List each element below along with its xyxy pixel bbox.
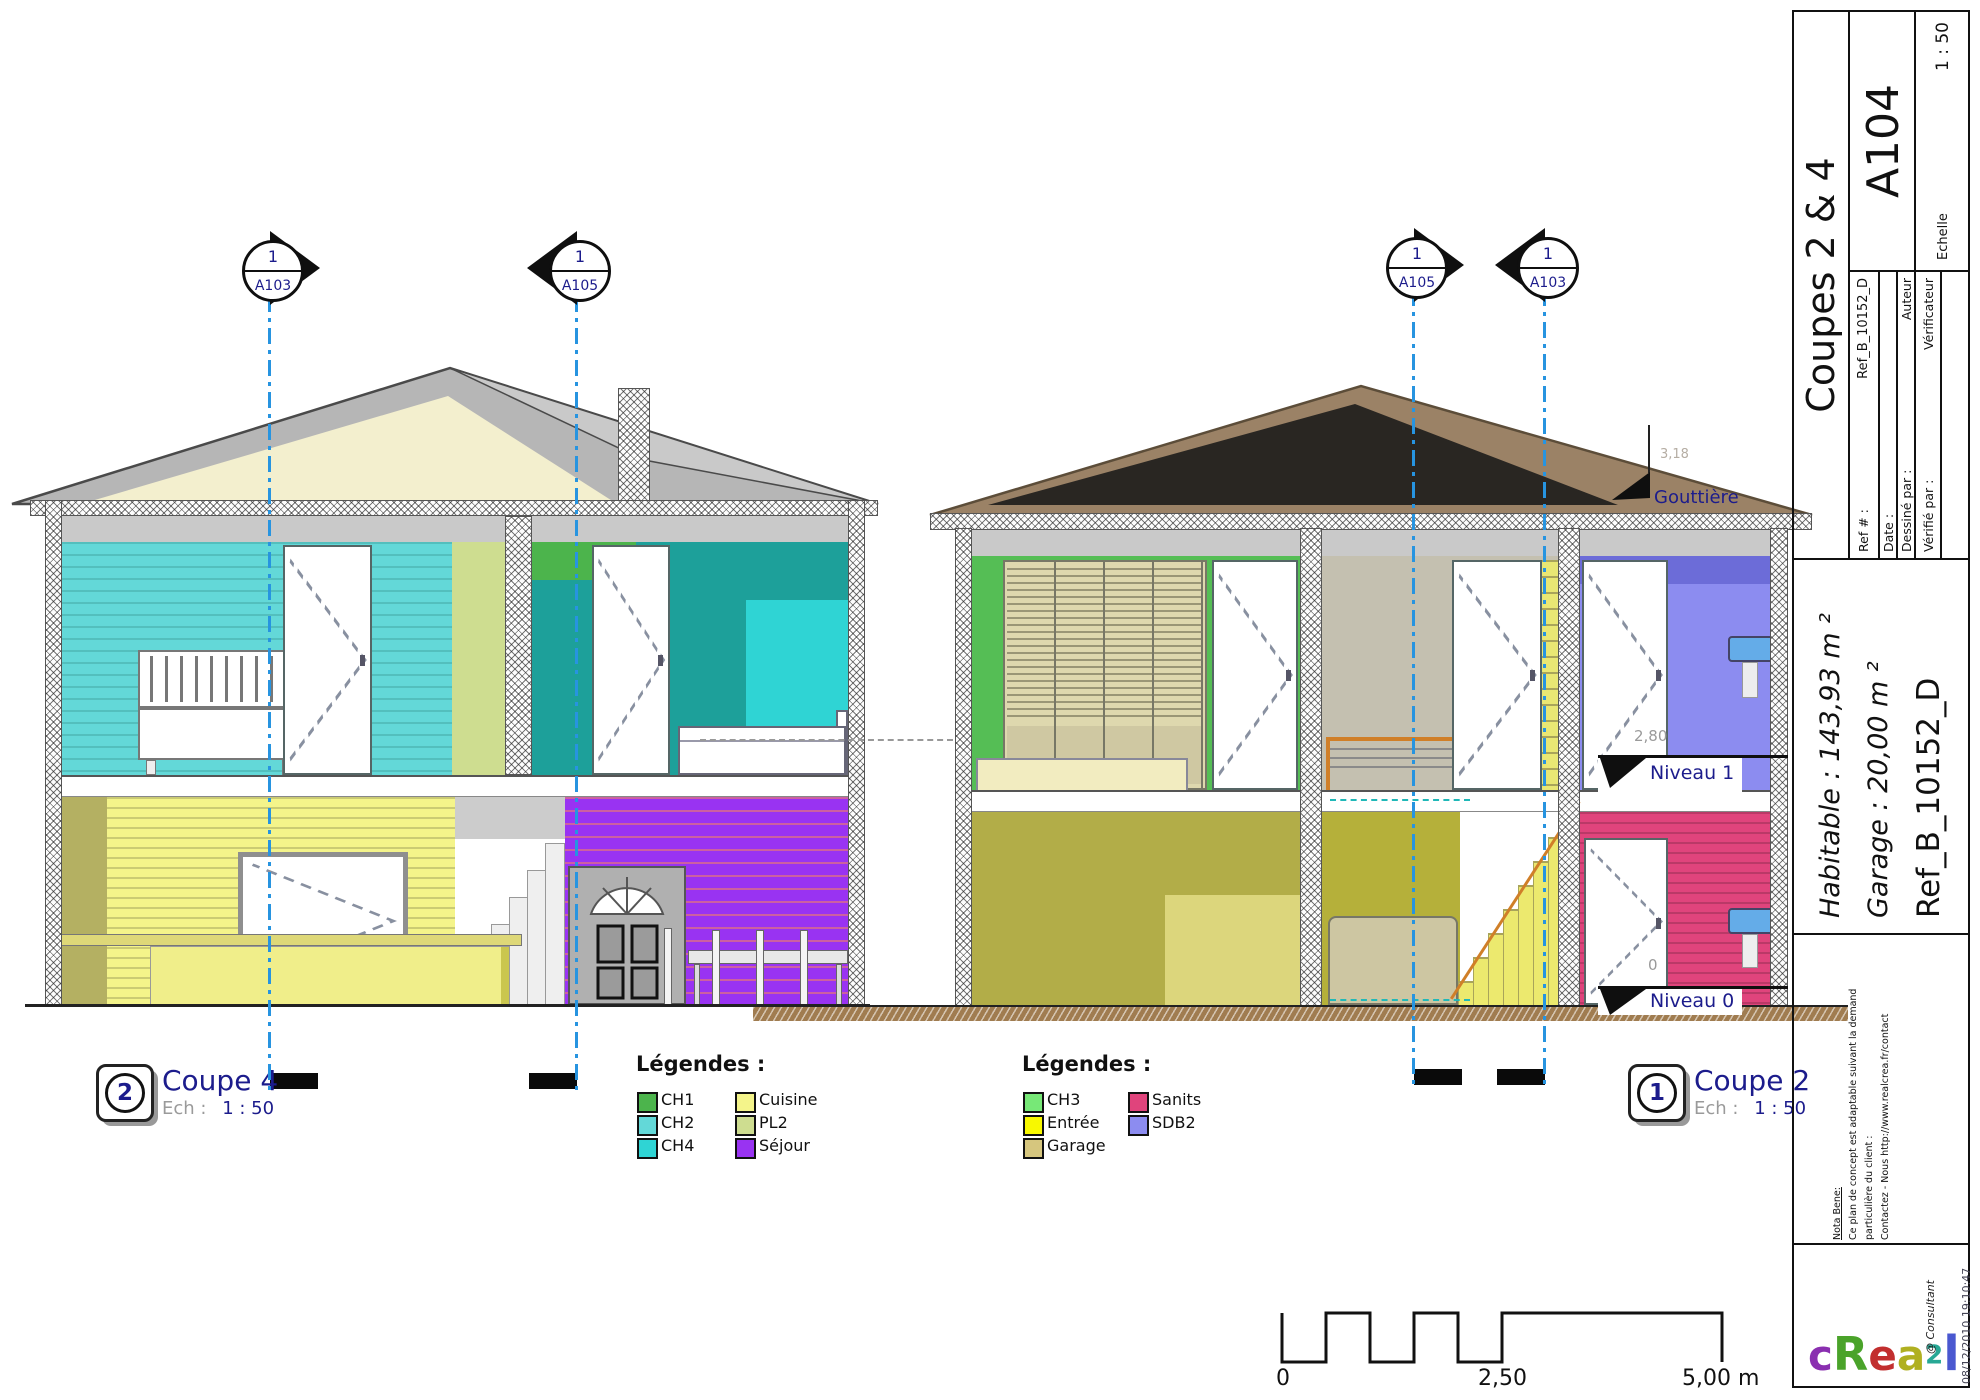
coupe4-icon: 2 [96, 1064, 154, 1122]
legend-label: Cuisine [759, 1090, 818, 1109]
coupe2-scale: Ech : 1 : 50 [1694, 1098, 1806, 1119]
section-marker-sheet: A103 [245, 272, 301, 299]
scale-label-start: 0 [1276, 1366, 1290, 1391]
kitchen-counter-top [52, 934, 522, 946]
section-marker-number: 1 [552, 243, 608, 272]
legend-label: Garage [1047, 1136, 1106, 1155]
tb-border [1792, 1386, 1970, 1388]
gouttiere-label: Gouttière [1654, 487, 1739, 508]
tb-nota-line: particulière du client : [1862, 988, 1878, 1240]
left-wall [955, 528, 972, 1006]
level-ref-dashed-teal [1330, 999, 1470, 1001]
legend-swatch [1128, 1115, 1149, 1136]
ground-line [25, 1004, 870, 1007]
legend-swatch [637, 1138, 658, 1159]
stair-step [1518, 885, 1534, 1007]
radiator-panel [138, 708, 300, 760]
tb-nota-line: Ce plan de concept est adaptable suivant… [1846, 988, 1862, 1240]
chair [756, 930, 764, 1005]
section-line [1543, 290, 1546, 1085]
gouttiere-arrow [1610, 470, 1650, 502]
coupe4-scale: Ech : 1 : 50 [162, 1098, 274, 1119]
tb-areas: Habitable : 143,93 m ² Garage : 20,00 m … [1794, 562, 1968, 932]
tb-divider [1848, 270, 1970, 272]
door [283, 545, 372, 775]
tb-field-label: Dessiné par : [1899, 470, 1914, 552]
coupe4-scale-label: Ech : [162, 1098, 206, 1119]
guard-line [1330, 757, 1466, 759]
coupe2-scale-value: 1 : 50 [1754, 1098, 1806, 1119]
cut-bar [529, 1073, 577, 1089]
door [1452, 560, 1542, 790]
legend-label: Sanits [1152, 1090, 1201, 1109]
level-ref-dashed-teal [1330, 799, 1470, 801]
guard-line [1330, 748, 1466, 750]
left-upper-ceiling-band [62, 516, 848, 542]
left-floor-slab [45, 775, 865, 797]
door [1212, 560, 1298, 790]
tb-sheet-number: A104 [1852, 14, 1914, 268]
coupe2-icon-circle: 1 [1637, 1073, 1677, 1113]
stair-step [1473, 957, 1489, 1007]
coupe4-scale-value: 1 : 50 [222, 1098, 274, 1119]
tb-divider [1792, 558, 1970, 560]
tb-nota-heading: Nota Bene: [1830, 988, 1846, 1240]
scale-label-mid: 2,50 [1478, 1366, 1527, 1391]
plot-timestamp-text: 08/12/2010 19:10:47 [1960, 1268, 1973, 1384]
left-eave-band [30, 500, 878, 516]
center-wall [1300, 528, 1322, 1006]
niveau0-dim: 0 [1648, 956, 1658, 974]
section-marker: 1 A103 [1517, 237, 1579, 299]
center-wall [1558, 528, 1580, 1006]
legend-label: SDB2 [1152, 1113, 1196, 1132]
chair [712, 930, 720, 1005]
tb-field-value: Auteur [1899, 278, 1914, 320]
shutter-separators [1007, 562, 1203, 788]
guard-line [1330, 766, 1466, 768]
legend-label: CH1 [661, 1090, 694, 1109]
tb-divider [1792, 933, 1970, 935]
legend-swatch [1023, 1092, 1044, 1113]
section-marker: 1 A103 [242, 240, 304, 302]
legend-swatch [735, 1115, 756, 1136]
legend-label: CH2 [661, 1113, 694, 1132]
coupe4-icon-circle: 2 [105, 1073, 145, 1113]
legend-swatch [637, 1115, 658, 1136]
chair [800, 930, 808, 1005]
section-marker-sheet: A105 [1389, 269, 1445, 296]
tb-sheet-number-text: A104 [1858, 84, 1909, 198]
section-line [268, 296, 271, 1090]
legend-label: Séjour [759, 1136, 810, 1155]
bed [976, 758, 1188, 792]
tb-scale-cell: Echelle 1 : 50 [1918, 14, 1968, 268]
tb-area-garage: Garage : 20,00 m ² [1855, 562, 1903, 918]
legend-swatch [1023, 1138, 1044, 1159]
radiator-leg [146, 760, 156, 775]
cuisine-olive-strip [62, 797, 107, 1005]
door [592, 545, 670, 775]
table-leg [694, 964, 700, 1005]
stair-step [545, 843, 565, 1007]
cut-bar [1414, 1069, 1462, 1085]
table-leg [836, 964, 842, 1005]
tb-field-label: Date : [1881, 514, 1896, 552]
niveau1-dim: 2,80 [1634, 727, 1667, 745]
door [1584, 838, 1668, 1005]
stair-step [1503, 909, 1519, 1007]
niveau0-arrow [1600, 989, 1646, 1015]
section-line [575, 296, 578, 1090]
legend-title: Légendes : [636, 1052, 765, 1076]
section-marker: 1 A105 [549, 240, 611, 302]
tb-field-dessine: Dessiné par : Auteur [1898, 274, 1914, 556]
logo-letter: a [1897, 1331, 1925, 1380]
legend-swatch [735, 1138, 756, 1159]
tb-consultant: @ Consultant [1924, 1276, 1942, 1354]
tb-area-habitable: Habitable : 143,93 m ² [1807, 562, 1855, 918]
sink-pedestal [1742, 934, 1758, 968]
niveau0-label: Niveau 0 [1650, 990, 1734, 1012]
niveau1-label: Niveau 1 [1650, 762, 1734, 784]
tb-reference: Ref_B_10152_D [1903, 562, 1955, 918]
tb-sheet-title: Coupes 2 & 4 [1794, 14, 1848, 556]
tb-border [1792, 10, 1970, 12]
room-pl2 [452, 542, 505, 775]
logo-letter: e [1868, 1331, 1897, 1380]
tb-sheet-title-text: Coupes 2 & 4 [1799, 157, 1843, 412]
coupe2-icon: 1 [1628, 1064, 1686, 1122]
sink-basin [1728, 636, 1774, 662]
logo-letter: R [1833, 1327, 1868, 1381]
gouttiere-leader [1648, 425, 1650, 473]
level-ref-dashed [700, 739, 953, 741]
kitchen-cabinet [150, 946, 510, 1005]
chair [664, 928, 672, 1005]
legend-swatch [1128, 1092, 1149, 1113]
right-wall [1770, 528, 1788, 1006]
legend-label: CH4 [661, 1136, 694, 1155]
bed [678, 726, 846, 775]
tb-field-value: Ref_B_10152_D [1856, 278, 1871, 379]
left-roof [0, 352, 900, 522]
legend-swatch [1023, 1115, 1044, 1136]
tb-field-ref: Ref # : Ref_B_10152_D [1850, 274, 1877, 556]
left-stair-header [455, 797, 565, 839]
tb-divider [1792, 1243, 1970, 1245]
tb-scale-label: Echelle [1936, 213, 1951, 260]
section-marker-number: 1 [245, 243, 301, 272]
section-marker: 1 A105 [1386, 237, 1448, 299]
tb-nota: Nota Bene: Ce plan de concept est adapta… [1830, 988, 1900, 1240]
right-eave-band [930, 513, 1812, 530]
stair-step [509, 897, 529, 1007]
garage-panel [1165, 895, 1300, 1005]
right-wall [848, 500, 865, 1006]
cut-bar [1497, 1069, 1545, 1085]
tb-divider [1940, 270, 1942, 560]
section-line [1412, 290, 1415, 1085]
tb-scale-value: 1 : 50 [1933, 22, 1953, 71]
left-wall [45, 500, 62, 1006]
section-marker-sheet: A103 [1520, 269, 1576, 296]
tb-field-label: Ref # : [1856, 509, 1871, 552]
right-floor-slab [955, 790, 1788, 812]
tb-border [1968, 10, 1970, 1388]
legend-label: PL2 [759, 1113, 788, 1132]
tb-field-date: Date : [1880, 274, 1896, 556]
center-wall [505, 516, 532, 775]
tb-field-value: Vérificateur [1921, 278, 1936, 350]
coupe4-number: 2 [117, 1080, 133, 1106]
legend-title: Légendes : [1022, 1052, 1151, 1076]
coupe4-title: Coupe 4 [162, 1064, 278, 1097]
stair-step [527, 870, 547, 1007]
plot-timestamp: 08/12/2010 19:10:47 [1960, 1220, 1976, 1384]
sofa [1328, 916, 1458, 1005]
stair-step [1533, 861, 1549, 1007]
tb-field-label: Vérifié par : [1921, 480, 1936, 552]
section-marker-number: 1 [1389, 240, 1445, 269]
legend-swatch [735, 1092, 756, 1113]
legend-label: Entrée [1047, 1113, 1099, 1132]
stair-step [1488, 933, 1504, 1007]
scale-bar-graphic [1270, 1300, 1740, 1370]
sink-pedestal [1742, 662, 1758, 698]
left-attic-wall [618, 388, 650, 502]
legend-label: CH3 [1047, 1090, 1080, 1109]
right-upper-ceiling-band [972, 530, 1770, 556]
tb-consultant-text: @ Consultant [1924, 1280, 1937, 1354]
tb-field-verifie: Vérifié par : Vérificateur [1916, 274, 1940, 556]
handrail [1326, 737, 1472, 741]
sink-basin [1728, 908, 1774, 934]
coupe2-scale-label: Ech : [1694, 1098, 1738, 1119]
section-marker-sheet: A105 [552, 272, 608, 299]
logo-letter: c [1808, 1331, 1833, 1380]
drawing-sheet: Niveau 1 2,80 Niveau 0 0 Gouttière 3,18 … [0, 0, 1980, 1400]
section-marker-number: 1 [1520, 240, 1576, 269]
coupe2-number: 1 [1649, 1080, 1665, 1106]
legend-swatch [637, 1092, 658, 1113]
roof-dim: 3,18 [1660, 447, 1689, 462]
logo-letter: l [1943, 1326, 1959, 1382]
niveau1-arrow [1600, 758, 1646, 788]
scale-label-end: 5,00 m [1682, 1366, 1759, 1391]
tb-nota-line: Contactez - Nous http://www.realcrea.fr/… [1878, 988, 1894, 1240]
handrail-post [1326, 737, 1330, 790]
